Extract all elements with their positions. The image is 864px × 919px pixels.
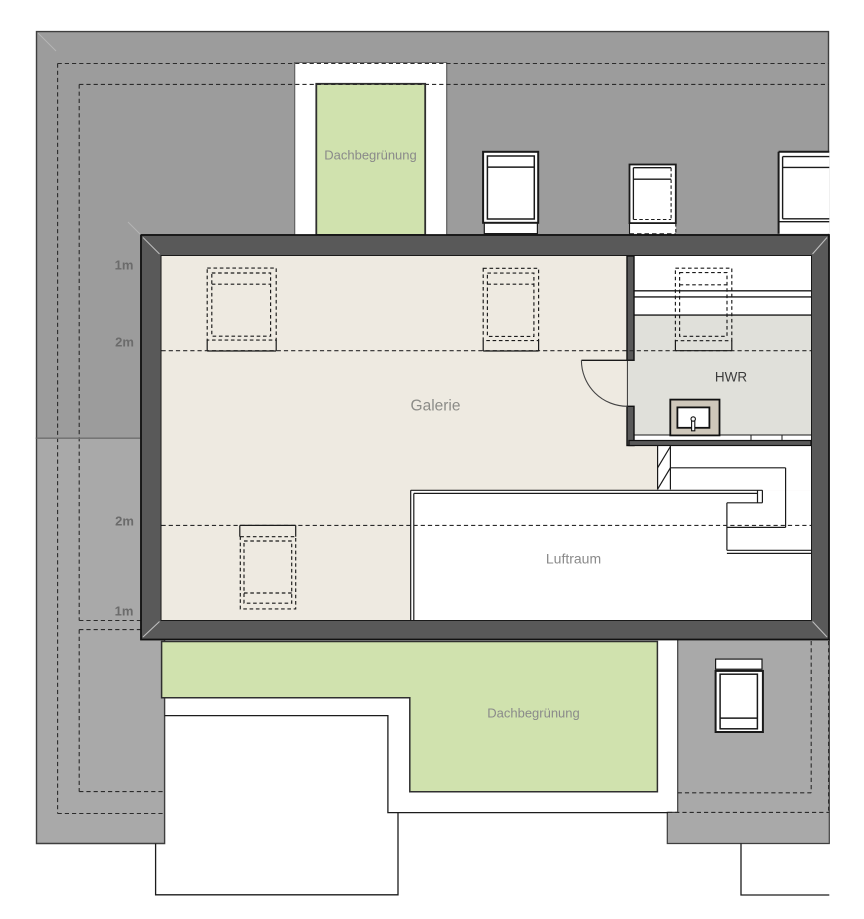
svg-text:Luftraum: Luftraum <box>546 551 601 567</box>
svg-text:2m: 2m <box>115 335 134 350</box>
svg-text:Dachbegrünung: Dachbegrünung <box>324 148 417 163</box>
svg-text:Galerie: Galerie <box>411 398 461 415</box>
svg-text:HWR: HWR <box>715 370 747 385</box>
svg-text:Dachbegrünung: Dachbegrünung <box>487 706 580 721</box>
svg-text:2m: 2m <box>115 514 134 529</box>
svg-text:1m: 1m <box>115 604 134 619</box>
svg-text:1m: 1m <box>115 258 134 273</box>
